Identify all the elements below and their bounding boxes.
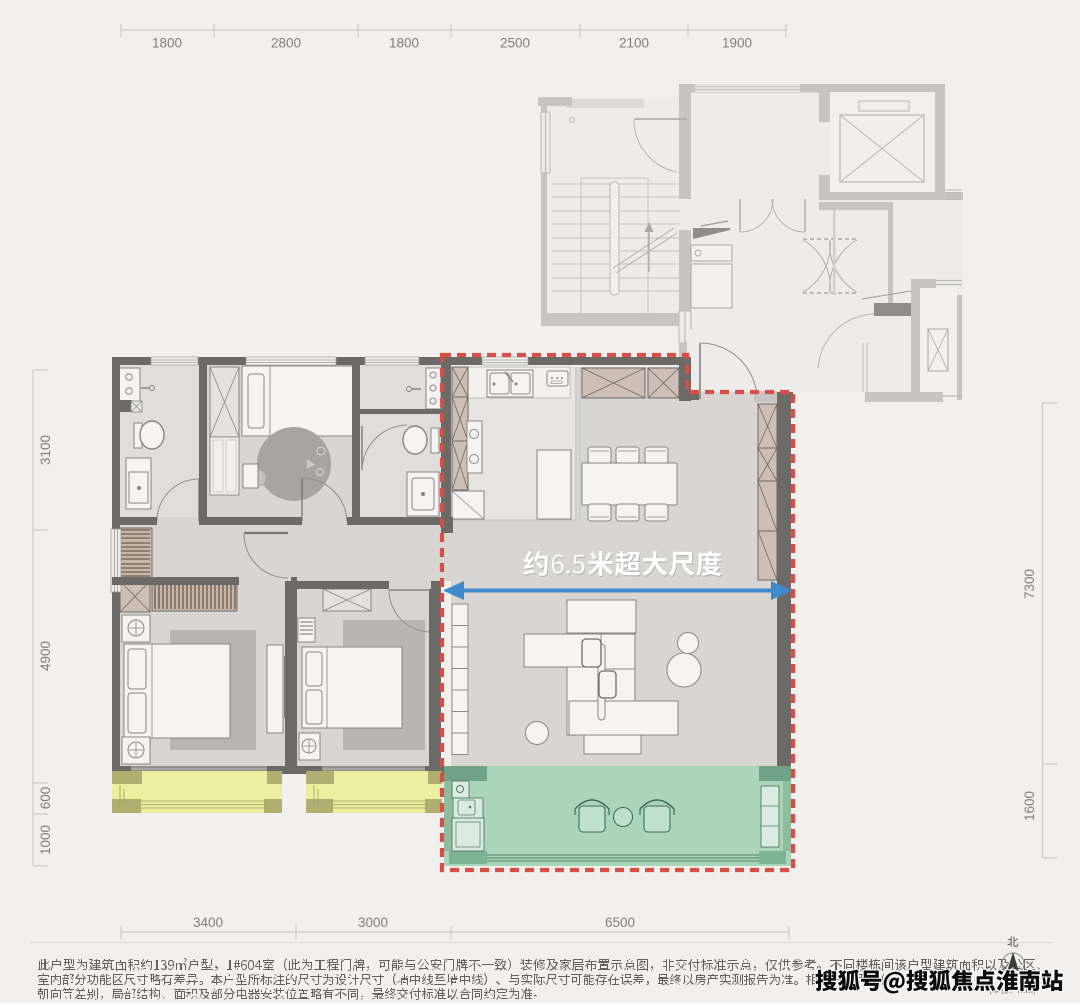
svg-text:2800: 2800 (271, 36, 301, 51)
svg-text:3400: 3400 (193, 915, 223, 930)
svg-text:1600: 1600 (1022, 791, 1037, 821)
svg-text:1800: 1800 (152, 36, 182, 51)
svg-text:2100: 2100 (619, 36, 649, 51)
svg-text:3000: 3000 (358, 915, 388, 930)
svg-text:6500: 6500 (605, 915, 635, 930)
svg-text:7300: 7300 (1022, 569, 1037, 599)
svg-text:2500: 2500 (500, 36, 530, 51)
svg-text:1800: 1800 (389, 36, 419, 51)
svg-text:600: 600 (38, 787, 53, 810)
svg-text:4900: 4900 (38, 641, 53, 671)
svg-text:1000: 1000 (38, 825, 53, 855)
svg-text:3100: 3100 (38, 435, 53, 465)
svg-text:1900: 1900 (722, 36, 752, 51)
